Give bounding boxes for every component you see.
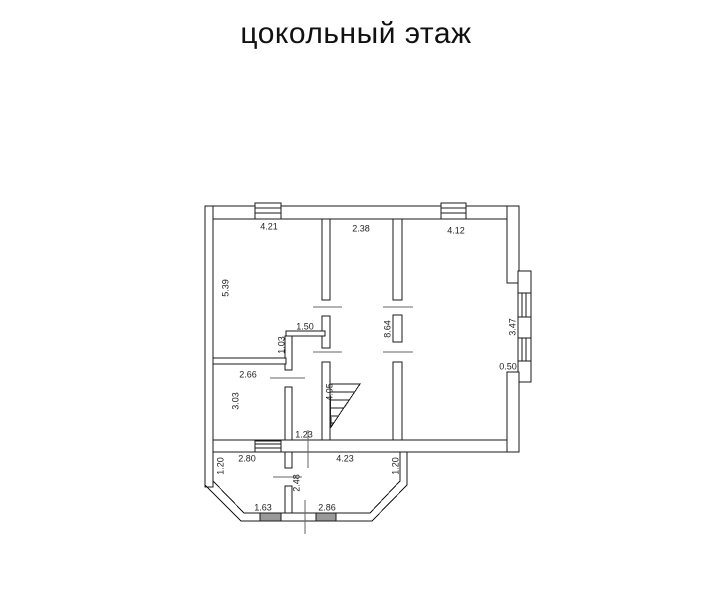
floor-plan-drawing — [0, 0, 712, 600]
window-bay-right — [316, 513, 336, 521]
window-right-niche-upper — [518, 293, 531, 317]
dim-bay-side-right: 1.20 — [392, 457, 401, 475]
wall-v3-lower — [285, 387, 292, 440]
dim-small-room-height: 3.03 — [232, 392, 241, 410]
dim-room3-width: 4.12 — [447, 227, 465, 236]
window-top-left — [255, 203, 281, 219]
window-top-right — [441, 203, 466, 219]
interior-walls — [213, 219, 402, 513]
dim-center-wall-length: 8.64 — [384, 320, 393, 338]
floor-plan-page: цокольный этаж — [0, 0, 712, 600]
wall-v2-mid — [393, 315, 402, 342]
dim-room1-width: 4.21 — [260, 223, 278, 232]
dim-room2-width: 2.38 — [352, 225, 370, 234]
wall-bay-center-upper — [285, 452, 292, 468]
stairs-icon — [330, 384, 360, 427]
window-right-niche-lower — [518, 338, 531, 361]
dim-hall-nook-height: 1.03 — [278, 336, 287, 354]
wall-v1-bottom — [322, 362, 330, 440]
dim-bottom-opening: 1.23 — [295, 431, 313, 440]
dim-bay-side-left: 1.20 — [217, 457, 226, 475]
wall-nook-horizontal — [286, 331, 325, 336]
wall-right-niche — [518, 271, 531, 382]
dim-right-bay-ledge: 0.50 — [499, 363, 517, 372]
dim-bay-window-right: 2.86 — [318, 504, 336, 513]
dim-hall-nook-width: 1.50 — [296, 323, 314, 332]
dim-bay-center-wall: 2.48 — [293, 474, 302, 492]
wall-v2-bottom — [393, 362, 402, 440]
dim-bay-room-right: 4.23 — [336, 455, 354, 464]
dim-stair-run: 4.05 — [326, 383, 335, 401]
window-bottom-main — [255, 441, 281, 452]
window-bay-left — [260, 513, 281, 521]
wall-v1-top — [322, 219, 330, 300]
bay-outline-outer — [205, 452, 407, 521]
dim-bay-window-left: 1.63 — [254, 504, 272, 513]
dim-room1-height: 5.39 — [222, 279, 231, 297]
dim-bay-room-left: 2.80 — [238, 455, 256, 464]
dim-right-bay-span: 3.47 — [509, 318, 518, 336]
wall-left — [205, 206, 213, 487]
wall-small-room-top — [213, 358, 286, 364]
dim-small-room-width: 2.66 — [239, 371, 257, 380]
wall-right-upper — [507, 206, 519, 283]
wall-right-lower — [507, 372, 519, 452]
wall-v2-top — [393, 219, 402, 300]
wall-top — [205, 206, 519, 219]
